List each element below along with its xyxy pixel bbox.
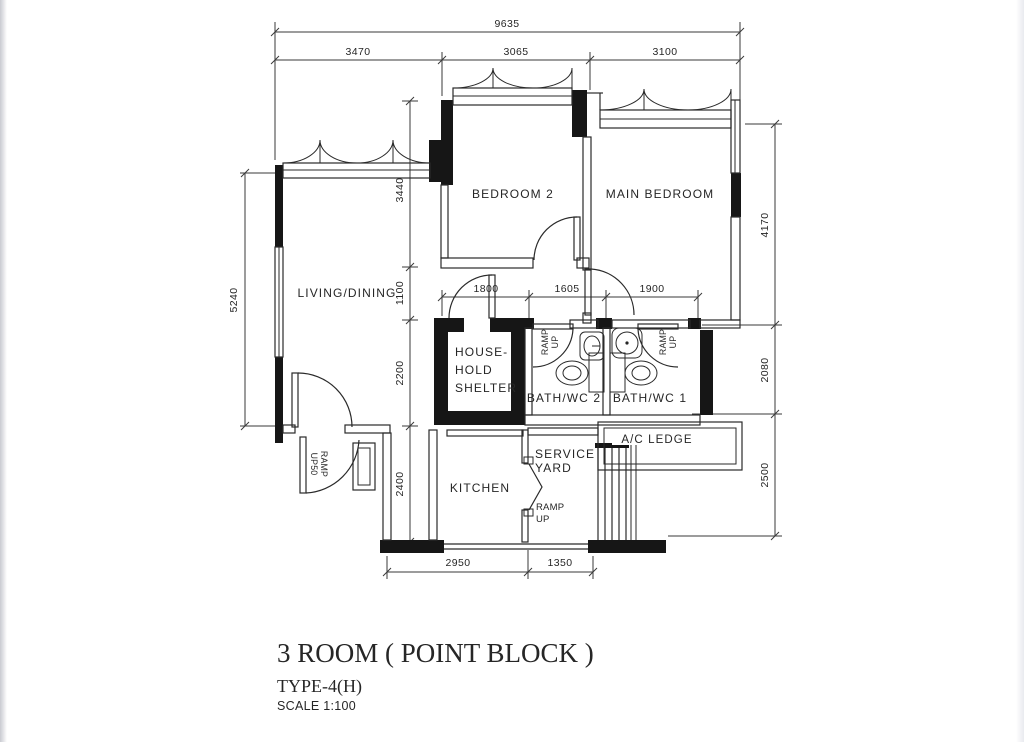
label-service-yard-line1: SERVICE (535, 447, 595, 461)
label-ramp-sy-line1: RAMP (536, 502, 564, 513)
floor-plan-drawing: 9635 3470 3065 3100 5240 (0, 0, 1024, 742)
dim-inner-2200: 2200 (394, 361, 406, 386)
dim-top-mid: 3065 (504, 46, 529, 58)
label-ramp-entrance-line2: UP50 (309, 453, 319, 476)
bath2-toilet (556, 353, 604, 392)
main-bedroom-door (585, 269, 634, 315)
label-ramp-entrance-line1: RAMP (319, 451, 329, 477)
label-ramp-bath2-line2: UP (550, 336, 560, 349)
floor-plan-page: 9635 3470 3065 3100 5240 (0, 0, 1024, 742)
bedroom2-window (453, 68, 572, 105)
living-side-window (275, 247, 283, 357)
plan-scale: SCALE 1:100 (277, 699, 356, 713)
dim-right-2080: 2080 (759, 358, 771, 383)
dim-top-overall: 9635 (495, 18, 520, 30)
label-ramp-service-yard: RAMP UP (536, 502, 564, 525)
entrance-door (292, 373, 352, 427)
label-living-dining: LIVING/DINING (298, 286, 397, 300)
room-labels: LIVING/DINING BEDROOM 2 MAIN BEDROOM HOU… (298, 187, 715, 495)
label-hhs-line2: HOLD (455, 363, 493, 377)
label-hhs-line1: HOUSE- (455, 345, 508, 359)
label-main-bedroom: MAIN BEDROOM (606, 187, 715, 201)
label-bedroom2: BEDROOM 2 (472, 187, 554, 201)
dim-bottom-2950: 2950 (446, 557, 471, 569)
plan-title: 3 ROOM ( POINT BLOCK ) (277, 638, 594, 668)
dim-inner-2400: 2400 (394, 472, 406, 497)
main-bedroom-side-window (731, 100, 740, 173)
windows (275, 68, 740, 357)
dim-right-2500: 2500 (759, 463, 771, 488)
living-window (283, 140, 430, 178)
service-yard-grille (595, 443, 636, 540)
dim-right-4170: 4170 (759, 213, 771, 238)
label-ramp-bath1: RAMP UP (658, 329, 678, 355)
label-ramp-bath1-line1: RAMP (658, 329, 668, 355)
bath1-toilet (610, 353, 657, 392)
label-service-yard-line2: YARD (535, 461, 572, 475)
dim-left-overall: 5240 (228, 288, 240, 313)
bath2-sink (580, 332, 604, 360)
label-ac-ledge: A/C LEDGE (621, 434, 692, 446)
label-ramp-bath2-line1: RAMP (540, 329, 550, 355)
household-shelter-door-opening (464, 315, 490, 335)
label-ramp-bath1-line2: UP (668, 336, 678, 349)
dim-mid-1605: 1605 (555, 283, 580, 295)
plan-type: TYPE-4(H) (277, 676, 362, 697)
label-ramp-bath2: RAMP UP (540, 329, 560, 355)
label-bath1: BATH/WC 1 (613, 391, 687, 405)
label-bath2: BATH/WC 2 (527, 391, 601, 405)
dim-top-right: 3100 (653, 46, 678, 58)
label-kitchen: KITCHEN (450, 481, 510, 495)
dim-mid-1900: 1900 (640, 283, 665, 295)
bedroom2-door (534, 217, 580, 260)
label-hhs-line3: SHELTER (455, 381, 517, 395)
dim-top-left: 3470 (346, 46, 371, 58)
label-ramp-entrance: RAMP UP50 (309, 451, 329, 477)
label-ramp-sy-line2: UP (536, 514, 550, 525)
main-bedroom-window (600, 89, 731, 128)
title-block: 3 ROOM ( POINT BLOCK ) TYPE-4(H) SCALE 1… (277, 638, 594, 713)
dim-inner-3440: 3440 (394, 178, 406, 203)
dim-bottom-1350: 1350 (548, 557, 573, 569)
